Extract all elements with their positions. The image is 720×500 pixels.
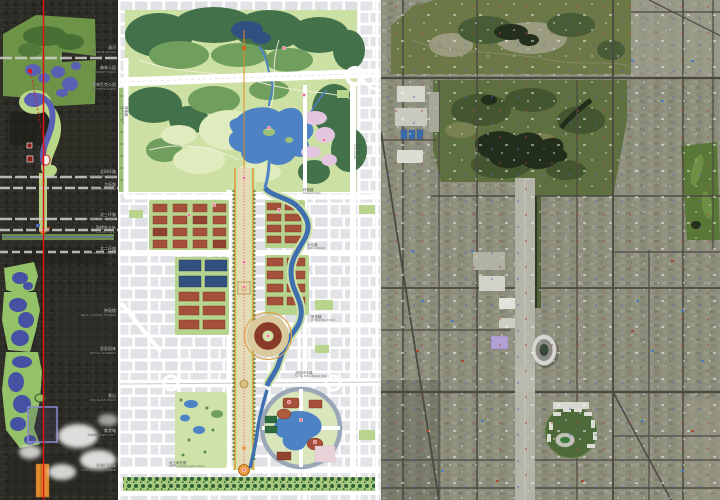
master-plan-map: [119, 0, 380, 500]
panel-master-plan: 林萃路LINCUI ROAD 安立路ANLI ROAD 科荟路KEHUI ROA…: [118, 0, 380, 500]
red-dot-marker: [28, 69, 32, 73]
forbidden-city-outline: [28, 407, 57, 442]
southwest-park-plan: [175, 392, 227, 468]
tiananmen-square-overlay: [36, 464, 49, 497]
panel-satellite: [380, 0, 720, 500]
satellite-map: [381, 0, 720, 500]
relic-park-tree-strip: [123, 477, 375, 491]
axis-strip-map: [0, 0, 118, 500]
building-zone-west-cultural: [175, 257, 229, 335]
square-marker: [27, 156, 33, 162]
rooftop-specks: [381, 0, 720, 500]
building-zone-northwest: [149, 200, 229, 250]
panel-axis-strip: 清河QINGHE RIVER 森林公园FOREST PARK 奥林匹克公园OLY…: [0, 0, 118, 500]
planning-board: 清河QINGHE RIVER 森林公园FOREST PARK 奥林匹克公园OLY…: [0, 0, 720, 500]
olympic-sports-center-plan: [262, 389, 340, 467]
square-marker: [27, 143, 32, 148]
